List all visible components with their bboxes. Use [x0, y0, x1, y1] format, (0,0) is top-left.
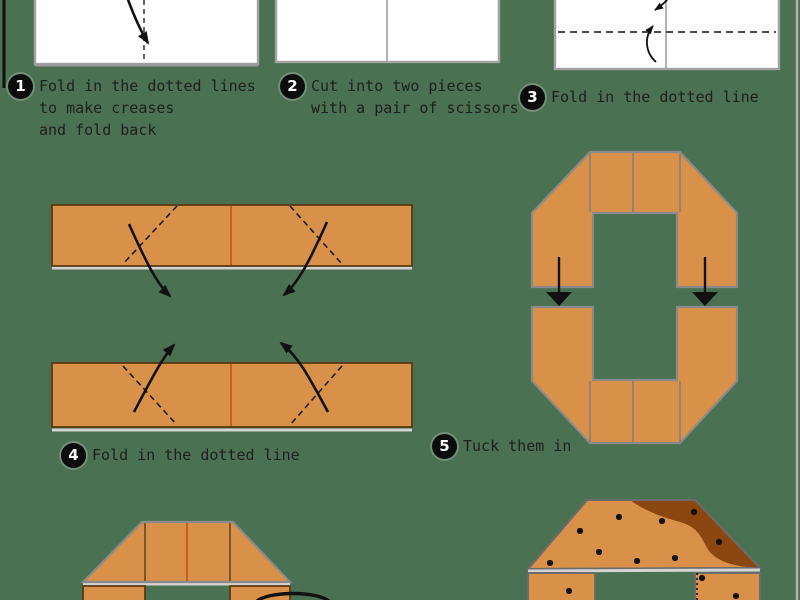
step5-instruction-text: Tuck them in [463, 434, 571, 457]
step1-instruction-text: Fold in the dotted lines to make creases… [39, 74, 256, 141]
left-leg [528, 573, 595, 600]
step2-instruction-text: Cut into two pieces with a pair of sciss… [311, 74, 519, 119]
left-leg [83, 586, 145, 600]
step1-caption: 1 Fold in the dotted lines to make creas… [8, 74, 256, 141]
step4-diagram [52, 205, 412, 430]
step4-caption: 4 Fold in the dotted line [61, 443, 300, 468]
step3-number-badge: 3 [520, 85, 545, 110]
step1-number-badge: 1 [8, 74, 33, 99]
instruction-line: Fold in the dotted line [551, 86, 759, 108]
instruction-line: Cut into two pieces [311, 75, 519, 97]
lower-half-piece [532, 307, 737, 443]
step5-diagram [532, 152, 737, 443]
step5-number-badge: 5 [432, 434, 457, 459]
step4-number-badge: 4 [61, 443, 86, 468]
step2-diagram [276, 0, 499, 62]
step2-caption: 2 Cut into two pieces with a pair of sci… [280, 74, 519, 119]
step3-caption: 3 Fold in the dotted line [520, 85, 759, 110]
step3-instruction-text: Fold in the dotted line [551, 85, 759, 108]
final-bread-diagram [528, 500, 760, 600]
step5-caption: 5 Tuck them in [432, 434, 571, 459]
origami-instruction-page: 1 Fold in the dotted lines to make creas… [0, 0, 800, 600]
instruction-line: with a pair of scissors [311, 97, 519, 119]
step2-number-badge: 2 [280, 74, 305, 99]
instruction-line: Tuck them in [463, 435, 571, 457]
instruction-line: and fold back [39, 119, 256, 141]
bread-shadow-edge [528, 570, 760, 571]
paper-sheet [35, 0, 258, 64]
step1-diagram [35, 0, 258, 65]
upper-half-piece [532, 152, 737, 287]
step4-instruction-text: Fold in the dotted line [92, 443, 300, 466]
step3-diagram [555, 0, 779, 69]
instruction-line: Fold in the dotted line [92, 444, 300, 466]
instruction-line: to make creases [39, 97, 256, 119]
step6-diagram [83, 522, 329, 600]
instruction-line: Fold in the dotted lines [39, 75, 256, 97]
